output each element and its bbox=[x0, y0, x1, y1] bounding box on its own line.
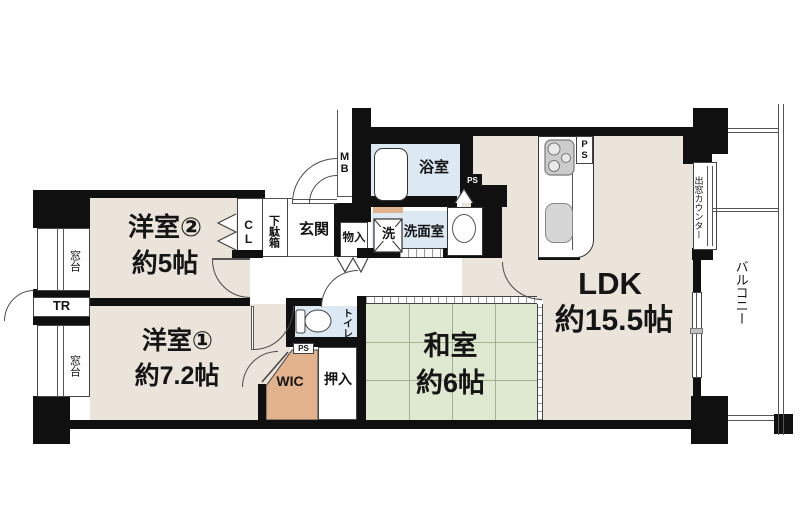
window-sill-label: 窓台 bbox=[68, 342, 80, 390]
pipe-space-badge: PS bbox=[463, 174, 482, 187]
pipe-space-label: PS bbox=[467, 176, 478, 185]
room-size-western2: 約5帖 bbox=[95, 250, 235, 277]
toilet-icon bbox=[296, 310, 305, 333]
bath-label: 浴室 bbox=[410, 160, 458, 176]
floor-plan: 洋室② 約5帖 洋室① 約7.2帖 和室 約6帖 LDK 約15.5帖 浴室 洗… bbox=[0, 0, 800, 531]
pipe-space-label: PS bbox=[298, 344, 309, 353]
pipe-space-badge: PS bbox=[293, 343, 314, 354]
meter-box-label: MB bbox=[338, 146, 350, 179]
room-size-japanese: 約6帖 bbox=[393, 369, 508, 397]
room-label-ldk: LDK bbox=[555, 268, 665, 301]
room-size-ldk: 約15.5帖 bbox=[538, 305, 690, 337]
room-label-western2: 洋室② bbox=[95, 214, 235, 241]
window-sill-label: 窓台 bbox=[68, 240, 80, 282]
monoire-label: 物入 bbox=[341, 232, 367, 244]
bay-window-counter-label: 出窓カウンター bbox=[693, 167, 702, 247]
room-label-japanese: 和室 bbox=[398, 332, 503, 360]
washroom-label: 洗面室 bbox=[401, 225, 447, 239]
balcony-label: バルコニー bbox=[734, 258, 748, 326]
bath-door-icon bbox=[455, 189, 473, 203]
closet-cl-label: CL bbox=[242, 212, 255, 252]
oshiire-label: 押入 bbox=[320, 372, 356, 387]
genkan-label: 玄関 bbox=[293, 222, 335, 238]
room-label-western1: 洋室① bbox=[105, 328, 250, 354]
washer-label: 洗 bbox=[380, 227, 397, 241]
toilet-label: トイレ bbox=[340, 306, 351, 339]
trunk-room-label: TR bbox=[40, 299, 83, 313]
wic-label: WIC bbox=[267, 374, 313, 389]
pipe-space-label: PS bbox=[579, 139, 590, 161]
room-size-western1: 約7.2帖 bbox=[102, 363, 252, 389]
pipe-space-badge: PS bbox=[576, 136, 593, 164]
door-leaf bbox=[251, 306, 254, 350]
shoe-cabinet-label: 下駄箱 bbox=[267, 207, 279, 255]
